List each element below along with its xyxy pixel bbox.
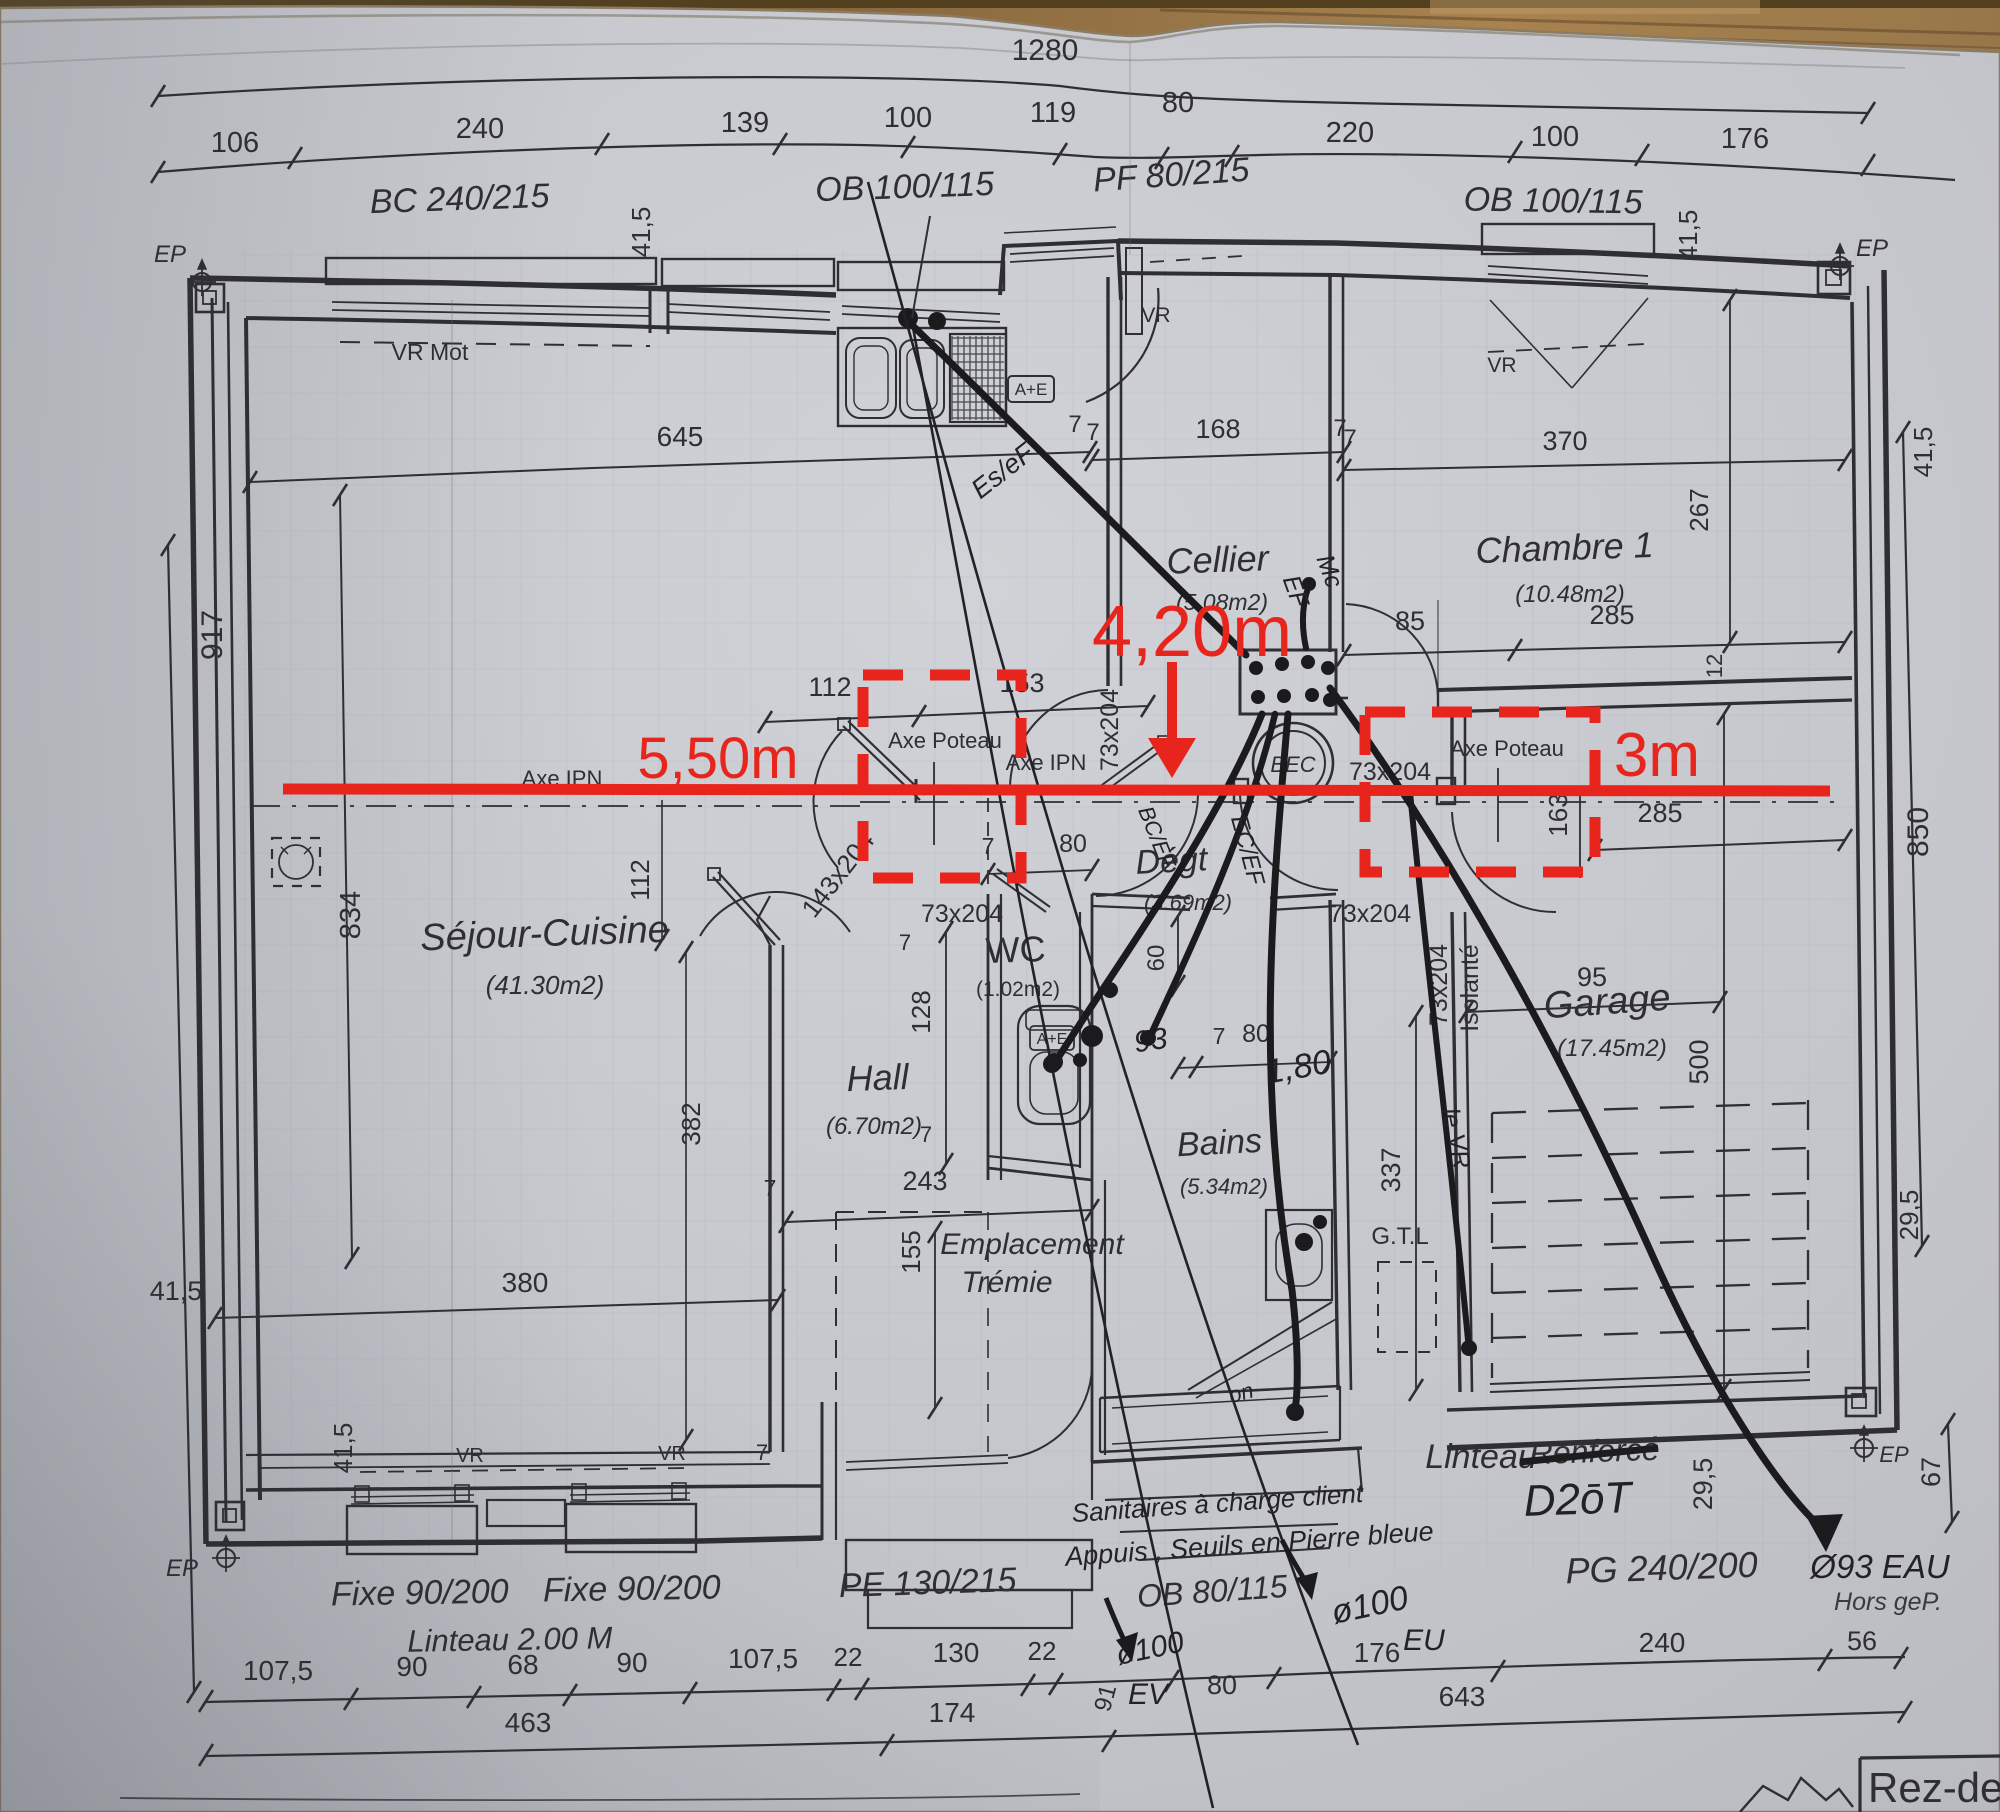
svg-text:Fixe 90/200: Fixe 90/200 <box>331 1572 509 1613</box>
svg-text:7: 7 <box>1068 411 1081 438</box>
svg-text:100: 100 <box>1531 121 1579 153</box>
svg-text:(5.34m2): (5.34m2) <box>1180 1174 1268 1199</box>
svg-text:73x204: 73x204 <box>1096 689 1124 771</box>
svg-text:(17.45m2): (17.45m2) <box>1557 1035 1666 1062</box>
svg-text:PG 240/200: PG 240/200 <box>1565 1544 1758 1592</box>
svg-text:VR: VR <box>1487 354 1516 377</box>
svg-text:463: 463 <box>505 1707 552 1738</box>
svg-text:7: 7 <box>899 930 911 955</box>
svg-text:112: 112 <box>808 672 851 702</box>
svg-text:PE 130/215: PE 130/215 <box>838 1561 1017 1605</box>
svg-text:41,5: 41,5 <box>328 1423 358 1474</box>
svg-text:D2ōT: D2ōT <box>1523 1473 1635 1526</box>
svg-text:29,5: 29,5 <box>1894 1190 1924 1241</box>
svg-text:107,5: 107,5 <box>243 1655 313 1686</box>
svg-text:EP: EP <box>154 241 186 268</box>
svg-text:EP: EP <box>1879 1442 1909 1467</box>
svg-text:22: 22 <box>834 1642 863 1672</box>
svg-text:Trémie: Trémie <box>961 1266 1052 1299</box>
svg-text:EV: EV <box>1128 1678 1171 1711</box>
svg-text:80: 80 <box>1207 1670 1237 1700</box>
svg-text:107,5: 107,5 <box>728 1643 798 1674</box>
svg-text:240: 240 <box>1639 1627 1686 1658</box>
svg-text:41,5: 41,5 <box>150 1276 203 1306</box>
svg-text:(41.30m2): (41.30m2) <box>486 970 605 1000</box>
svg-text:834: 834 <box>335 891 367 939</box>
svg-text:Bains: Bains <box>1176 1122 1263 1164</box>
svg-text:139: 139 <box>721 107 769 139</box>
svg-text:176: 176 <box>1721 123 1769 155</box>
svg-text:G.T.L: G.T.L <box>1371 1223 1428 1250</box>
svg-text:112: 112 <box>625 859 655 900</box>
svg-text:Linteau: Linteau <box>1425 1438 1537 1476</box>
svg-text:119: 119 <box>1030 97 1076 129</box>
svg-text:243: 243 <box>902 1166 947 1196</box>
svg-text:7: 7 <box>1213 1023 1226 1049</box>
svg-text:643: 643 <box>1439 1681 1486 1712</box>
svg-text:73x204: 73x204 <box>1329 900 1411 928</box>
svg-text:90: 90 <box>616 1647 647 1678</box>
svg-text:850: 850 <box>1902 807 1935 857</box>
svg-text:Chambre 1: Chambre 1 <box>1475 524 1654 571</box>
svg-text:7: 7 <box>756 1440 768 1465</box>
svg-text:67: 67 <box>1916 1457 1946 1487</box>
svg-text:917: 917 <box>196 610 229 660</box>
svg-text:5,50m: 5,50m <box>637 726 798 791</box>
svg-text:80: 80 <box>1162 87 1194 119</box>
svg-text:240: 240 <box>456 113 504 145</box>
svg-text:VR: VR <box>456 1445 484 1467</box>
svg-text:267: 267 <box>1684 488 1714 531</box>
svg-text:Séjour-Cuisine: Séjour-Cuisine <box>420 909 670 960</box>
svg-text:BEC: BEC <box>1270 752 1315 777</box>
svg-text:380: 380 <box>502 1267 549 1298</box>
svg-text:Fixe 90/200: Fixe 90/200 <box>543 1568 721 1609</box>
svg-text:7: 7 <box>920 1122 932 1147</box>
svg-text:56: 56 <box>1847 1626 1877 1656</box>
svg-text:WC: WC <box>985 928 1046 971</box>
svg-text:130: 130 <box>933 1637 980 1668</box>
svg-text:155: 155 <box>896 1230 926 1273</box>
svg-text:EP: EP <box>166 1555 198 1582</box>
svg-text:168: 168 <box>1195 414 1240 444</box>
svg-text:VR: VR <box>1141 304 1170 327</box>
svg-text:41,5: 41,5 <box>1673 210 1703 261</box>
svg-text:OB 100/115: OB 100/115 <box>1463 180 1643 221</box>
svg-text:(10.48m2): (10.48m2) <box>1515 581 1624 608</box>
svg-text:Rez-de-C: Rez-de-C <box>1868 1764 2000 1811</box>
svg-text:174: 174 <box>929 1697 976 1728</box>
svg-text:Hall: Hall <box>846 1056 910 1099</box>
svg-text:EU: EU <box>1403 1624 1445 1657</box>
svg-text:60: 60 <box>1143 945 1170 972</box>
svg-text:(1.02m2): (1.02m2) <box>976 978 1060 1001</box>
svg-text:Axe Poteau: Axe Poteau <box>1450 736 1564 761</box>
svg-text:OB 100/115: OB 100/115 <box>815 165 995 209</box>
svg-text:EP: EP <box>1856 235 1888 262</box>
svg-text:Linteau 2.00 M: Linteau 2.00 M <box>407 1620 613 1659</box>
svg-text:382: 382 <box>676 1102 706 1145</box>
svg-text:Emplacement: Emplacement <box>940 1228 1125 1261</box>
svg-text:Garage: Garage <box>1542 977 1671 1028</box>
svg-text:1280: 1280 <box>1012 34 1079 67</box>
svg-text:370: 370 <box>1542 426 1587 456</box>
svg-text:41,5: 41,5 <box>1908 427 1938 478</box>
svg-text:285: 285 <box>1637 798 1682 828</box>
svg-text:12: 12 <box>1702 654 1727 678</box>
svg-text:176: 176 <box>1354 1637 1401 1668</box>
svg-text:VR Mot: VR Mot <box>392 339 469 365</box>
svg-text:337: 337 <box>1376 1147 1406 1192</box>
svg-text:106: 106 <box>211 127 259 159</box>
svg-text:(6.70m2): (6.70m2) <box>826 1113 922 1140</box>
svg-text:41,5: 41,5 <box>626 207 656 258</box>
svg-text:BC 240/215: BC 240/215 <box>369 177 550 221</box>
svg-text:A+E: A+E <box>1015 380 1048 399</box>
svg-text:500: 500 <box>1684 1039 1714 1084</box>
svg-text:3m: 3m <box>1614 721 1700 790</box>
svg-text:220: 220 <box>1326 117 1374 149</box>
svg-text:645: 645 <box>657 421 704 452</box>
svg-text:163: 163 <box>1543 793 1573 836</box>
svg-text:7: 7 <box>764 1175 777 1201</box>
svg-text:4,20m: 4,20m <box>1092 592 1292 672</box>
svg-text:7: 7 <box>1343 425 1356 452</box>
svg-text:Axe Poteau: Axe Poteau <box>888 728 1002 753</box>
svg-text:Isolanté: Isolanté <box>1456 944 1484 1032</box>
svg-text:73x204: 73x204 <box>921 900 1003 928</box>
svg-text:80: 80 <box>1059 830 1087 858</box>
svg-text:128: 128 <box>906 990 936 1033</box>
svg-text:Cellier: Cellier <box>1166 537 1271 582</box>
svg-text:29,5: 29,5 <box>1688 1458 1718 1511</box>
svg-text:22: 22 <box>1028 1636 1057 1666</box>
svg-text:Ø93 EAU: Ø93 EAU <box>1809 1548 1950 1585</box>
svg-text:100: 100 <box>884 102 932 134</box>
svg-text:Hors geP.: Hors geP. <box>1834 1588 1942 1616</box>
svg-text:80: 80 <box>1242 1020 1270 1048</box>
